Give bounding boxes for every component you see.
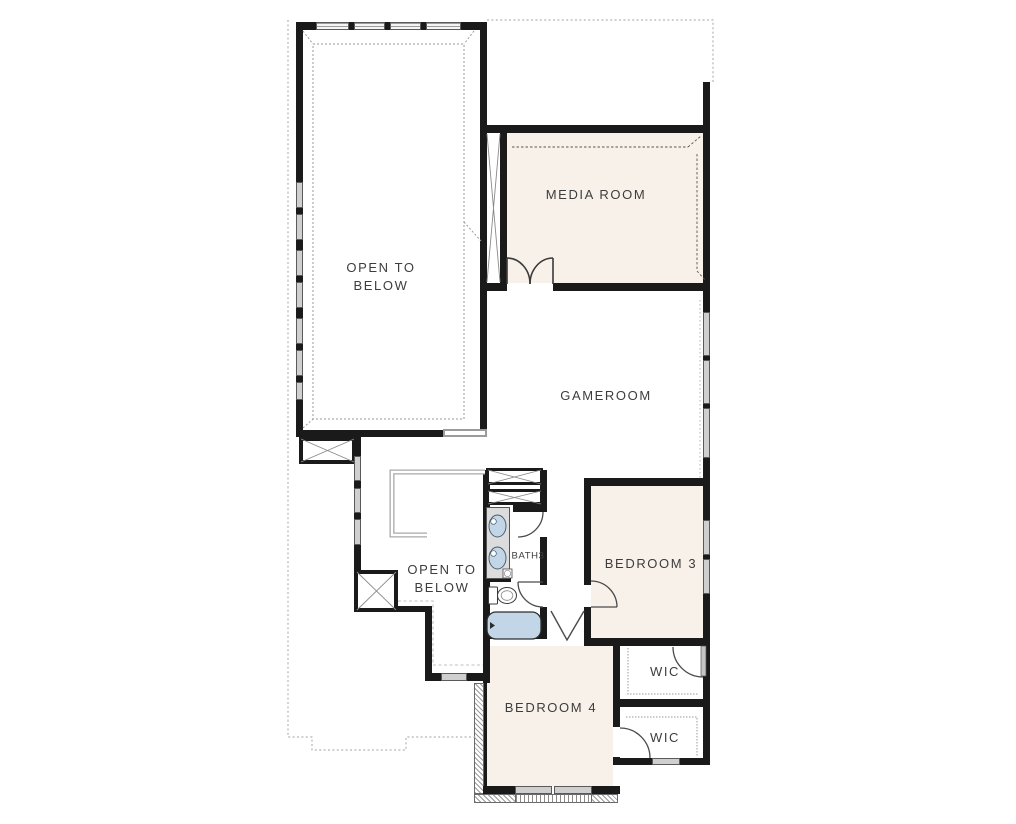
wic-lower-door-arc (620, 728, 650, 758)
room-label-open-to-below-lower: OPEN TO BELOW (407, 561, 476, 597)
window (554, 786, 592, 794)
room-label-bedroom3: BEDROOM 3 (605, 555, 697, 573)
chase-x-box (354, 570, 398, 612)
window (354, 22, 385, 30)
window-sill-hatch (515, 794, 592, 803)
window (652, 758, 680, 765)
wall (584, 478, 710, 486)
bath-vanity-counter (486, 507, 510, 579)
stair-rail (392, 472, 485, 535)
window (296, 182, 303, 208)
chase-x-box (299, 437, 356, 464)
wall (703, 82, 710, 133)
window (354, 488, 361, 513)
window (354, 519, 361, 545)
window (296, 318, 303, 344)
linen-cabinet (486, 468, 543, 485)
window (426, 22, 461, 30)
wall (425, 612, 432, 673)
room-label-media-room: MEDIA ROOM (546, 186, 647, 204)
wall (480, 283, 507, 291)
label-line: BELOW (354, 278, 409, 293)
wall (613, 699, 710, 707)
wall (425, 673, 441, 681)
wall (592, 786, 620, 794)
room-label-bedroom4: BEDROOM 4 (505, 699, 597, 717)
window (354, 456, 361, 481)
wall (484, 683, 487, 786)
wall (296, 430, 447, 437)
window (316, 22, 349, 30)
media-room-fill (507, 133, 703, 283)
wall (584, 638, 710, 646)
wall (613, 758, 652, 765)
window (703, 520, 710, 555)
room-label-wic-upper: WIC (650, 663, 680, 681)
wall (480, 22, 487, 437)
window (703, 312, 710, 356)
exterior-hatch-left (474, 683, 484, 794)
room-label-bath3: BATH3 (512, 551, 545, 562)
label-line: OPEN TO (346, 260, 415, 275)
window (296, 350, 303, 376)
wall (613, 646, 620, 727)
wall (553, 283, 710, 291)
window (441, 673, 467, 681)
wall (584, 478, 591, 585)
wall (513, 505, 547, 512)
room-label-open-to-below-upper: OPEN TO BELOW (346, 259, 415, 295)
window (390, 22, 421, 30)
window (703, 360, 710, 404)
room-label-wic-lower: WIC (650, 729, 680, 747)
window (515, 786, 552, 794)
wall (500, 133, 507, 283)
wall (483, 632, 547, 639)
window (703, 559, 710, 594)
linen-cabinet (486, 489, 543, 505)
wall (680, 758, 710, 765)
wall (467, 673, 487, 681)
window (296, 250, 303, 276)
window (703, 408, 710, 458)
window (296, 382, 303, 400)
wall (483, 786, 515, 794)
bedroom4-door (551, 611, 584, 640)
window (296, 214, 303, 240)
window (296, 282, 303, 308)
floor-plan: OPEN TO BELOW MEDIA ROOM GAMEROOM BATH3 … (0, 0, 1016, 824)
room-label-gameroom: GAMEROOM (560, 387, 652, 405)
stair-rail-segment (443, 429, 487, 437)
label-line: BELOW (415, 580, 470, 595)
label-line: OPEN TO (407, 562, 476, 577)
open-below-outline-dotted (303, 31, 481, 428)
wall (480, 125, 710, 133)
